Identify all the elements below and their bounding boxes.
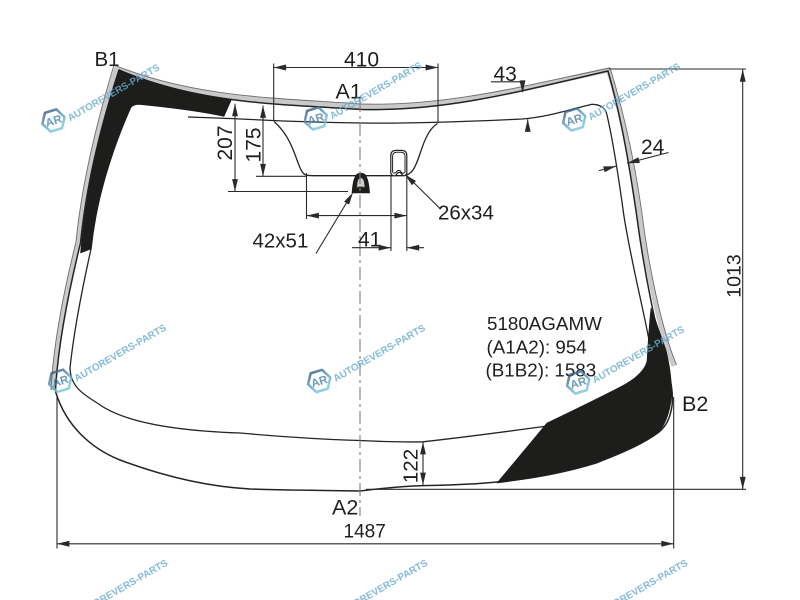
svg-text:207: 207 [214,125,237,160]
svg-text:410: 410 [344,48,379,71]
svg-text:B2: B2 [682,392,708,416]
svg-text:42x51: 42x51 [253,230,309,253]
svg-text:26x34: 26x34 [438,202,494,225]
svg-text:(A1A2): 954: (A1A2): 954 [487,336,587,357]
svg-text:5180AGAMW: 5180AGAMW [487,313,602,334]
svg-text:1487: 1487 [344,522,386,543]
svg-text:B1: B1 [95,48,120,71]
svg-text:A2: A2 [332,495,358,519]
svg-text:122: 122 [400,449,423,483]
svg-text:24: 24 [641,136,665,159]
svg-text:41: 41 [358,229,381,252]
svg-text:175: 175 [243,127,266,162]
svg-text:43: 43 [494,63,517,86]
svg-text:1013: 1013 [724,254,746,297]
